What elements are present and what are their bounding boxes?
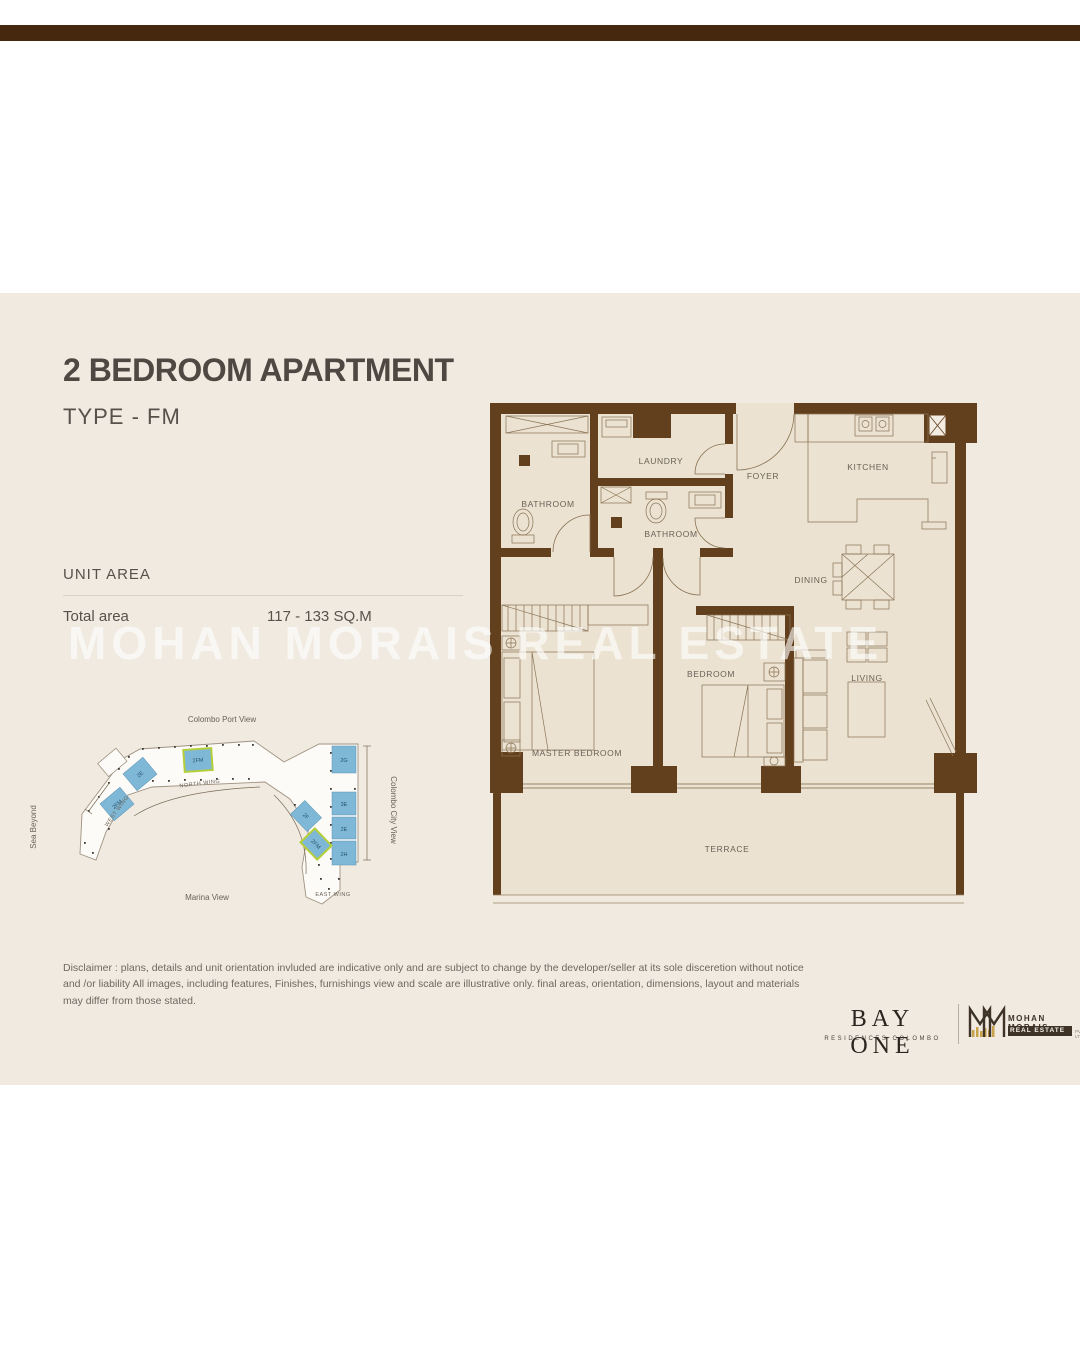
flyer-page: { "header": { "title": "2 BEDROOM APARTM… [0,0,1080,1350]
view-label-city: Colombo City View [389,776,398,844]
svg-text:2G: 2G [340,758,347,764]
svg-text:3E: 3E [341,802,348,808]
dining-label: DINING [794,575,827,585]
unit-2g: 2G [332,746,356,773]
bathroom2-label: BATHROOM [644,529,697,539]
logo-divider [958,1004,959,1044]
laundry-label: LAUNDRY [639,456,684,466]
mm-letters [970,1009,1004,1037]
view-label-port: Colombo Port View [188,715,257,724]
view-label-marina: Marina View [185,893,229,902]
bathroom1-label: BATHROOM [521,499,574,509]
page-title: 2 BEDROOM APARTMENT [63,352,454,389]
real-estate-strip: REAL ESTATE [1008,1026,1072,1036]
foyer-label: FOYER [747,471,779,481]
building-keyplan: 2E 2FM 2FM 2G 3E 2E 2H 2F [22,692,402,922]
disclaimer-text: Disclaimer : plans, details and unit ori… [63,960,821,1009]
master-bedroom-label: MASTER BEDROOM [532,748,622,758]
unit-area-heading: UNIT AREA [63,566,151,583]
mm-monogram-icon [968,1004,1008,1044]
top-brand-bar [0,25,1080,41]
view-label-sea: Sea Beyond [29,805,38,849]
footer-logos: BAY ONE RESIDENCES COLOMBO MOHAN MORAIS … [820,1000,1070,1055]
wing-label-east: EAST WING [315,892,350,898]
unit-type-subtitle: TYPE - FM [63,404,181,430]
watermark-text: MOHAN MORAIS REAL ESTATE [68,616,883,670]
terrace-railing [493,895,964,903]
terrace-label: TERRACE [705,844,750,854]
bayone-tagline: RESIDENCES COLOMBO [820,1036,945,1042]
unit-2fm-north-highlighted: 2FM [183,748,212,772]
pvt-ltd-label: PVT LTD [1075,1029,1080,1039]
living-label: LIVING [851,673,882,683]
unit-2e-east: 2E [332,817,356,839]
bedroom-label: BEDROOM [687,669,735,679]
svg-text:2H: 2H [340,852,347,858]
svg-text:2FM: 2FM [192,758,204,765]
unit-area-divider [63,595,463,596]
bayone-logo: BAY ONE [820,1006,945,1060]
service-shaft [929,415,946,436]
svg-text:2E: 2E [341,827,348,833]
kitchen-label: KITCHEN [847,462,889,472]
unit-3e: 3E [332,792,356,815]
unit-2h: 2H [332,841,356,865]
